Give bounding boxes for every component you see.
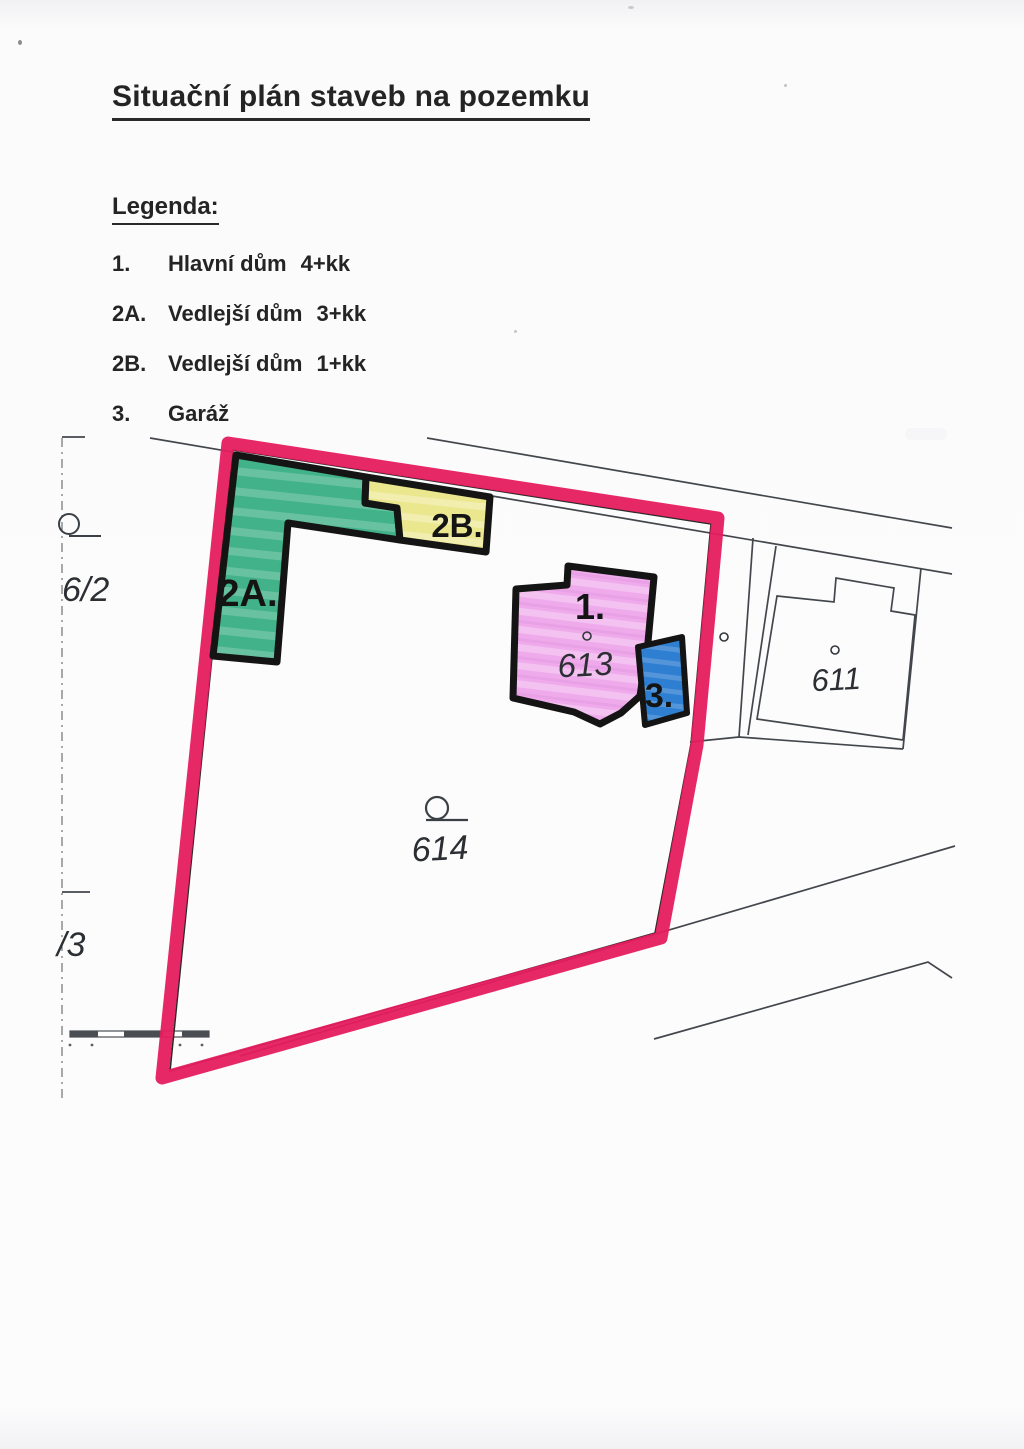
scan-speck bbox=[18, 40, 22, 45]
building-3-label: 3. bbox=[645, 677, 673, 715]
building-2b-label: 2B. bbox=[431, 507, 482, 544]
legend-item: 2A. Vedlejší dům 3+kk bbox=[112, 301, 366, 351]
legend-item-key: 2B. bbox=[112, 351, 168, 377]
scan-smudge bbox=[905, 428, 947, 440]
survey-circle bbox=[720, 633, 728, 641]
legend-item-key: 2A. bbox=[112, 301, 168, 327]
legend-heading: Legenda: bbox=[112, 193, 219, 225]
legend-item-name: Garáž bbox=[168, 401, 229, 427]
page-title: Situační plán staveb na pozemku bbox=[112, 80, 590, 121]
legend-item-key: 3. bbox=[112, 401, 168, 427]
scan-speck bbox=[628, 6, 634, 9]
parcel-6-2-label: 6/2 bbox=[62, 571, 109, 609]
legend-item-name: Hlavní dům bbox=[168, 251, 287, 277]
survey-arc-symbol bbox=[59, 514, 101, 536]
road-line-lower-right bbox=[654, 962, 952, 1039]
parcel-614-label: 614 bbox=[411, 829, 470, 870]
legend-item-unit: 1+kk bbox=[317, 351, 367, 377]
neighbor-building-611 bbox=[757, 578, 915, 740]
scan-speck bbox=[514, 330, 517, 333]
building-1-label: 1. bbox=[575, 586, 605, 627]
site-plan-map: 2A. 2B. 1. 3. 613 611 614 6/2 /3 bbox=[0, 425, 1024, 1135]
scale-bar bbox=[69, 1031, 209, 1046]
parcel-611-label: 611 bbox=[810, 661, 861, 699]
strip-line-1 bbox=[739, 538, 753, 737]
scan-speck bbox=[784, 84, 787, 87]
parcel-613-label: 613 bbox=[557, 645, 615, 685]
scanned-page: Situační plán staveb na pozemku Legenda:… bbox=[0, 0, 1024, 1449]
legend-item: 1. Hlavní dům 4+kk bbox=[112, 251, 366, 301]
legend-rows: 1. Hlavní dům 4+kk 2A. Vedlejší dům 3+kk… bbox=[112, 251, 366, 451]
parcel-614-symbol bbox=[426, 797, 468, 820]
parcel-3-label: /3 bbox=[55, 926, 85, 964]
legend-item-name: Vedlejší dům bbox=[168, 351, 303, 377]
legend-item-unit: 3+kk bbox=[317, 301, 367, 327]
building-2a-label: 2A. bbox=[218, 573, 277, 615]
parcel-611-bottom-line bbox=[690, 737, 903, 749]
legend-item: 2B. Vedlejší dům 1+kk bbox=[112, 351, 366, 401]
legend-item-key: 1. bbox=[112, 251, 168, 277]
legend-item-name: Vedlejší dům bbox=[168, 301, 303, 327]
legend-item-unit: 4+kk bbox=[301, 251, 351, 277]
legend: Legenda: 1. Hlavní dům 4+kk 2A. Vedlejší… bbox=[112, 193, 366, 451]
